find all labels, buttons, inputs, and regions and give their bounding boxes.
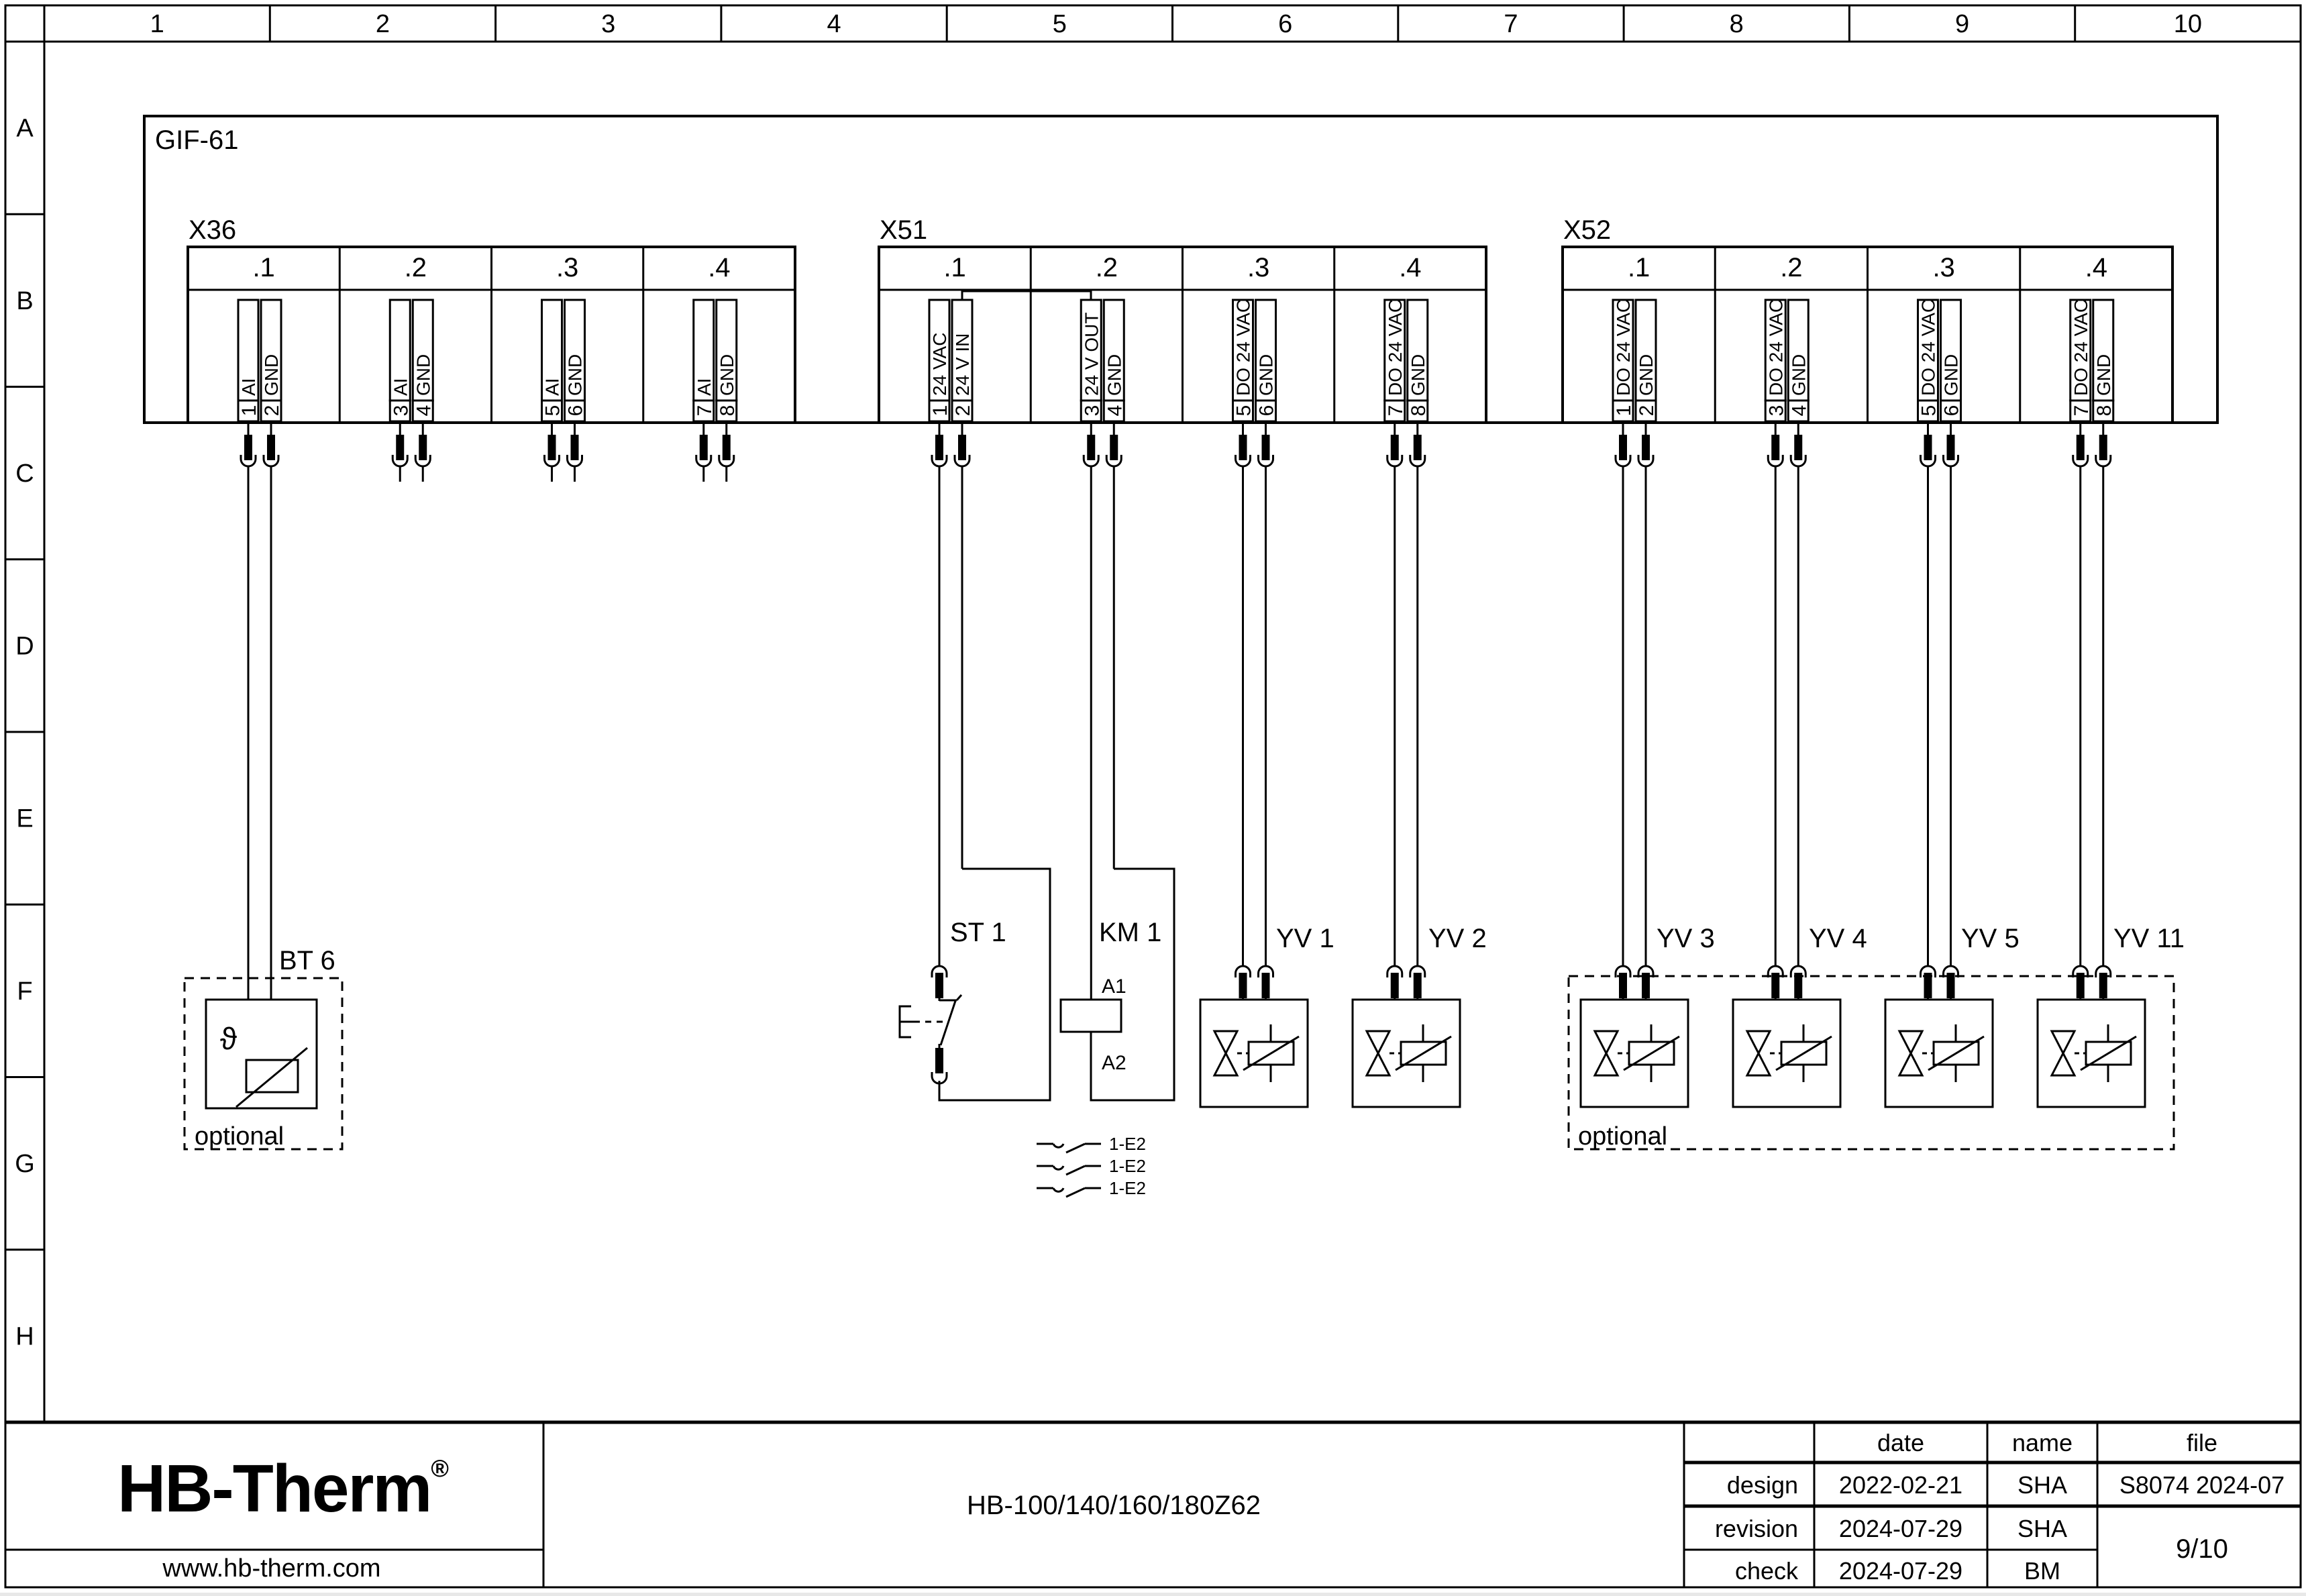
coil-icon <box>1061 1000 1121 1032</box>
pin: DO 24 VAC7 <box>1385 299 1407 1001</box>
socket-contact-icon <box>1053 1144 1063 1147</box>
column-ruler-label: 9 <box>1955 10 1969 38</box>
pin: GND8 <box>1408 300 1430 1001</box>
optional-note: optional <box>1578 1122 1667 1151</box>
pin: GND6 <box>565 300 587 482</box>
plug-contact-icon <box>1262 973 1270 998</box>
row-ruler-label: E <box>16 805 33 833</box>
plug-contact-icon <box>244 435 252 460</box>
column-ruler-label: 6 <box>1278 10 1292 38</box>
pin-signal-label: AI <box>390 378 411 396</box>
pin-signal-label: 24 VAC <box>929 333 950 396</box>
cell-caption: .4 <box>1399 253 1421 282</box>
column-ruler-label: 5 <box>1053 10 1067 38</box>
optional-note: optional <box>195 1122 284 1151</box>
pin: GND4 <box>1104 300 1126 869</box>
pin-signal-label: AI <box>542 378 563 396</box>
pin: DO 24 VAC3 <box>1765 299 1787 1001</box>
pin-number: 6 <box>1256 405 1278 417</box>
connector-label: X36 <box>189 215 236 245</box>
pin-signal-label: GND <box>2093 354 2114 396</box>
pin-signal-label: AI <box>694 378 715 396</box>
plug-contact-icon <box>1642 435 1650 460</box>
plug-contact-icon <box>1087 435 1095 460</box>
pin-signal-label: 24 V IN <box>952 333 973 396</box>
model-designation: HB-100/140/160/180Z62 <box>967 1491 1261 1520</box>
plug-contact-icon <box>958 435 966 460</box>
device-valve: YV 1 <box>1200 924 1334 1107</box>
pin-signal-label: DO 24 VAC <box>1765 299 1786 396</box>
pin-signal-label: DO 24 VAC <box>2071 299 2091 396</box>
pin: DO 24 VAC5 <box>1233 299 1255 1001</box>
row-ruler-label: F <box>17 977 32 1006</box>
pin-number: 4 <box>413 405 435 417</box>
pin-number: 4 <box>1104 405 1126 417</box>
cell-caption: .2 <box>1096 253 1118 282</box>
coil-terminal-a1: A1 <box>1102 975 1126 998</box>
device-valve: YV 5 <box>1885 924 2020 1107</box>
pin: AI1 <box>238 300 260 1000</box>
col-header-file: file <box>2187 1429 2217 1456</box>
valve-box <box>2038 1000 2145 1107</box>
contact-ref-label: 1-E2 <box>1109 1134 1146 1154</box>
connector-label: X52 <box>1563 215 1611 245</box>
pin-number: 7 <box>1385 405 1407 417</box>
pin-number: 4 <box>1788 405 1810 417</box>
pin-number: 2 <box>261 405 283 417</box>
pin-number: 2 <box>1636 405 1658 417</box>
company-website: www.hb-therm.com <box>162 1554 380 1583</box>
pin: AI7 <box>694 300 716 482</box>
pin-signal-label: AI <box>238 378 259 396</box>
device-label: BT 6 <box>279 946 335 975</box>
plug-contact-icon <box>2099 435 2107 460</box>
pin-number: 3 <box>390 405 412 417</box>
pin: GND4 <box>413 300 435 482</box>
cell-caption: .2 <box>405 253 427 282</box>
device-label: YV 5 <box>1961 924 2020 953</box>
pin: GND6 <box>1941 300 1963 1001</box>
contact-reference: 1-E2 <box>1037 1178 1146 1198</box>
plug-contact-icon <box>1391 973 1399 998</box>
device-label: YV 4 <box>1809 924 1867 953</box>
device-label: YV 2 <box>1428 924 1487 953</box>
device-km1: KM 1 A1 A2 1-E21-E21-E2 <box>1037 869 1174 1198</box>
pin-number: 8 <box>717 405 739 417</box>
plug-contact-icon <box>396 435 404 460</box>
contact-reference: 1-E2 <box>1037 1156 1146 1176</box>
cell-caption: .1 <box>252 253 274 282</box>
pin: DO 24 VAC1 <box>1613 299 1635 1001</box>
contact-blade <box>1066 1166 1085 1175</box>
pin: GND2 <box>1636 300 1658 1001</box>
pin-number: 8 <box>2093 405 2115 417</box>
valve-box <box>1200 1000 1308 1107</box>
pin: DO 24 VAC7 <box>2071 299 2093 1001</box>
row-ruler-label: C <box>15 460 34 488</box>
row-ruler-label: H <box>15 1322 34 1350</box>
cell-caption: .3 <box>556 253 578 282</box>
pin-number: 1 <box>1613 405 1635 417</box>
plug-contact-icon <box>419 435 427 460</box>
connector-block-x36: X36.1AI1GND2.2AI3GND4.3AI5GND6.4AI7GND8 <box>188 215 795 1000</box>
connector-label: X51 <box>880 215 927 245</box>
pin-signal-label: GND <box>1788 354 1809 396</box>
pin-signal-label: GND <box>565 354 586 396</box>
pin: GND6 <box>1256 300 1278 1001</box>
plug-contact-icon <box>1947 435 1955 460</box>
device-label: YV 1 <box>1276 924 1334 953</box>
pin-signal-label: GND <box>1941 354 1962 396</box>
device-valve: YV 2 <box>1353 924 1487 1107</box>
device-label: YV 3 <box>1657 924 1715 953</box>
drawing-frame: 12345678910ABCDEFGH <box>5 5 2301 1587</box>
plug-contact-icon <box>1794 435 1802 460</box>
cell-caption: .4 <box>708 253 730 282</box>
column-ruler-label: 1 <box>150 10 164 38</box>
cell-caption: .2 <box>1780 253 1802 282</box>
device-st1: ST 1 <box>900 869 1050 1100</box>
connector-block-x52: X52.1DO 24 VAC1GND2.2DO 24 VAC3GND4.3DO … <box>1563 215 2172 1001</box>
plug-contact-icon <box>267 435 275 460</box>
plug-contact-icon <box>1262 435 1270 460</box>
plug-contact-icon <box>1771 435 1779 460</box>
cell-caption: .1 <box>943 253 965 282</box>
pin-number: 5 <box>1918 405 1940 417</box>
plug-contact-icon <box>548 435 556 460</box>
pin: GND2 <box>261 300 283 1000</box>
check-name: BM <box>2024 1557 2060 1585</box>
pin-number: 7 <box>2071 405 2093 417</box>
plug-contact-icon <box>1924 435 1932 460</box>
contact-blade <box>1066 1144 1085 1153</box>
module-outline <box>144 116 2217 423</box>
page-border <box>5 5 2301 1587</box>
pin-number: 1 <box>238 405 260 417</box>
pin: 24 VAC1 <box>929 300 951 1001</box>
pin-number: 3 <box>1765 405 1787 417</box>
plug-contact-icon <box>723 435 731 460</box>
plug-contact-icon <box>2077 973 2085 998</box>
wiring-diagram: 12345678910ABCDEFGH GIF-61 X36.1AI1GND2.… <box>0 0 2306 1593</box>
valve-box <box>1733 1000 1840 1107</box>
pin-signal-label: DO 24 VAC <box>1613 299 1634 396</box>
device-bt6: BT 6 ϑ optional <box>185 946 342 1151</box>
pin-signal-label: DO 24 VAC <box>1918 299 1939 396</box>
pin-signal-label: DO 24 VAC <box>1385 299 1406 396</box>
row-ruler-label: D <box>15 632 34 660</box>
column-ruler-label: 4 <box>827 10 841 38</box>
pin: 24 V IN2 <box>952 300 974 869</box>
row-label-revision: revision <box>1715 1515 1798 1542</box>
schematic-page: 12345678910ABCDEFGH GIF-61 X36.1AI1GND2.… <box>0 0 2306 1593</box>
pin-signal-label: GND <box>717 354 737 396</box>
pin-number: 3 <box>1081 405 1103 417</box>
valve-devices: YV 1YV 2YV 3YV 4YV 5YV 11 <box>1200 924 2185 1107</box>
pin-signal-label: DO 24 VAC <box>1233 299 1254 396</box>
revision-name: SHA <box>2017 1515 2067 1542</box>
pin-number: 6 <box>565 405 587 417</box>
file-number: S8074 2024-07 <box>2119 1471 2285 1499</box>
pin: DO 24 VAC5 <box>1918 299 1940 1001</box>
column-ruler-label: 10 <box>2174 10 2202 38</box>
pin-signal-label: GND <box>1256 354 1277 396</box>
company-logo: HB-Therm® <box>117 1451 448 1526</box>
sheet-number: 9/10 <box>2176 1534 2228 1564</box>
design-date: 2022-02-21 <box>1839 1471 1962 1499</box>
pin-signal-label: GND <box>261 354 282 396</box>
row-label-design: design <box>1727 1471 1798 1499</box>
cell-caption: .1 <box>1628 253 1650 282</box>
row-ruler-label: A <box>16 115 34 143</box>
connector-blocks: X36.1AI1GND2.2AI3GND4.3AI5GND6.4AI7GND8X… <box>188 215 2172 1001</box>
col-header-name: name <box>2012 1429 2073 1456</box>
plug-contact-icon <box>1239 435 1247 460</box>
title-block: HB-Therm® www.hb-therm.com HB-100/140/16… <box>5 1422 2301 1587</box>
km1-contact-references: 1-E21-E21-E2 <box>1037 1134 1146 1198</box>
plug-contact-icon <box>1642 973 1650 998</box>
row-label-check: check <box>1735 1557 1799 1585</box>
revision-date: 2024-07-29 <box>1839 1515 1962 1542</box>
column-ruler-label: 2 <box>376 10 390 38</box>
pin-signal-label: GND <box>1408 354 1428 396</box>
valve-box <box>1885 1000 1993 1107</box>
registered-mark-icon: ® <box>431 1454 448 1482</box>
device-valve: YV 4 <box>1733 924 1867 1107</box>
plug-contact-icon <box>1391 435 1399 460</box>
pushbutton-actuator-icon <box>900 1006 914 1037</box>
pin-signal-label: GND <box>1636 354 1657 396</box>
device-valve: YV 11 <box>2038 924 2185 1107</box>
contact-blade <box>1066 1188 1085 1197</box>
pin-signal-label: GND <box>1104 354 1124 396</box>
socket-contact-icon <box>1053 1188 1063 1191</box>
plug-contact-icon <box>1110 435 1118 460</box>
pin: GND8 <box>2093 300 2115 1001</box>
col-header-date: date <box>1877 1429 1924 1456</box>
plug-contact-icon <box>2077 435 2085 460</box>
pin: GND4 <box>1788 300 1810 1001</box>
device-label: KM 1 <box>1099 918 1161 947</box>
plug-contact-icon <box>1619 435 1627 460</box>
device-label: YV 11 <box>2113 924 2185 953</box>
row-ruler-label: G <box>15 1150 35 1178</box>
pin-number: 7 <box>694 405 716 417</box>
device-label: ST 1 <box>950 918 1006 947</box>
plug-contact-icon <box>700 435 708 460</box>
cell-caption: .4 <box>2085 253 2107 282</box>
row-ruler-label: B <box>16 287 33 315</box>
pin-number: 1 <box>929 405 951 417</box>
column-ruler-label: 8 <box>1730 10 1744 38</box>
pin: 24 V OUT3 <box>1081 300 1103 1000</box>
wire-bridge-24v <box>962 291 1091 300</box>
plug-contact-icon <box>1414 435 1422 460</box>
design-name: SHA <box>2017 1471 2067 1499</box>
wire-st1-loop <box>939 869 1050 1100</box>
contact-ref-label: 1-E2 <box>1109 1156 1146 1176</box>
device-valve: YV 3 <box>1581 924 1715 1107</box>
coil-terminal-a2: A2 <box>1102 1052 1126 1074</box>
pin: AI3 <box>390 300 412 482</box>
plug-contact-icon <box>935 973 943 998</box>
cell-caption: .3 <box>1932 253 1954 282</box>
plug-contact-icon <box>1414 973 1422 998</box>
module-label: GIF-61 <box>155 125 238 155</box>
module-gif61: GIF-61 <box>144 116 2217 423</box>
contact-ref-label: 1-E2 <box>1109 1178 1146 1198</box>
logo-text: HB-Therm <box>117 1451 431 1526</box>
pin-number: 5 <box>542 405 564 417</box>
cell-caption: .3 <box>1247 253 1269 282</box>
valve-box <box>1581 1000 1688 1107</box>
pin-number: 5 <box>1233 405 1255 417</box>
pin-number: 2 <box>952 405 974 417</box>
socket-contact-icon <box>1053 1166 1063 1169</box>
connector-block-x51: X51.124 VAC124 V IN2.224 V OUT3GND4.3DO … <box>879 215 1486 1001</box>
column-ruler-label: 3 <box>601 10 615 38</box>
column-ruler-label: 7 <box>1504 10 1518 38</box>
contact-reference: 1-E2 <box>1037 1134 1146 1154</box>
check-date: 2024-07-29 <box>1839 1557 1962 1585</box>
valve-box <box>1353 1000 1460 1107</box>
plug-contact-icon <box>935 1048 943 1073</box>
pin-signal-label: GND <box>413 354 433 396</box>
plug-contact-icon <box>935 435 943 460</box>
pin-signal-label: 24 V OUT <box>1081 313 1102 396</box>
plug-contact-icon <box>1239 973 1247 998</box>
pin: AI5 <box>542 300 564 482</box>
pin: GND8 <box>717 300 739 482</box>
pin-number: 6 <box>1941 405 1963 417</box>
theta-icon: ϑ <box>220 1021 237 1056</box>
pin-number: 8 <box>1408 405 1430 417</box>
plug-contact-icon <box>571 435 579 460</box>
